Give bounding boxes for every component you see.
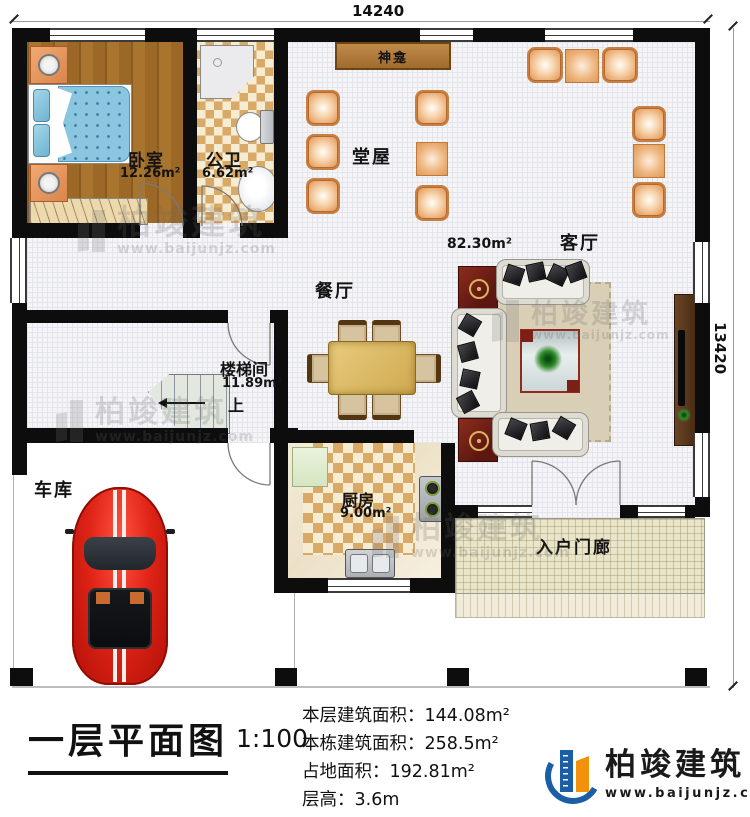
living-area: 82.30m² [447,236,512,252]
hall-chair [306,134,340,170]
nightstand [30,46,68,84]
wall-segment [274,578,328,593]
hall-side-table [416,142,448,176]
right-dimension-line [733,28,734,688]
tv-cabinet-plant [677,408,691,422]
car-windshield [84,537,155,571]
wall-segment [274,443,288,593]
wall-segment [12,42,27,238]
window [693,242,710,303]
hall-chair [527,47,563,83]
window [478,505,532,518]
window [420,28,473,42]
car-stripe [113,490,117,682]
nightstand [30,164,68,202]
toilet-tank [260,110,274,144]
column [685,668,707,686]
width-dimension-label: 14240 [352,2,404,20]
stat-building-area: 本栋建筑面积：258.5m² [302,730,499,755]
stairs-direction-arrow [163,402,205,404]
wall-segment [473,28,545,42]
top-dimension-line [12,21,710,22]
wall-segment [145,28,197,42]
car [72,487,168,685]
wall-segment [12,223,140,238]
wall-segment [410,578,455,593]
driveway-line [12,686,710,688]
dimension-tick [703,14,713,24]
stairs-up-label: 上 [228,392,244,416]
shrine-cabinet: 神龛 [335,42,451,70]
sofa-pillow [530,421,551,442]
hall-chair [306,90,340,126]
tv-screen [678,330,685,406]
end-table [458,266,498,310]
stat-land-area: 占地面积：192.81m² [302,758,475,783]
wall-segment [183,42,197,223]
wall-segment [695,42,710,242]
dining-chair [338,391,367,420]
kitchen-cutting-board [292,447,328,487]
car-engine-cover [88,588,151,649]
wall-segment [441,443,455,593]
wall-segment [12,428,228,443]
wall-segment [274,42,288,223]
wall-segment [12,28,50,42]
wall-segment [695,303,710,433]
bed-pillow [33,89,50,122]
drawing-title: 一层平面图 [28,712,228,775]
window [50,28,145,42]
living-label: 客厅 [560,229,600,255]
kitchen-area: 9.00m² [340,506,391,521]
column [275,668,297,686]
column [10,668,33,686]
brand-url: www.baijunjz.com [605,787,750,800]
dining-chair [372,391,401,420]
wall-segment [695,497,710,517]
sofa-pillow [525,261,546,282]
window [328,578,410,593]
car-mirror [166,529,175,534]
car-mirror [65,529,74,534]
hall-side-table [633,144,665,178]
stat-floor-height: 层高：3.6m [302,786,399,811]
hall-chair [415,90,449,126]
window [638,505,685,518]
wall-segment [441,505,478,518]
wall-segment [633,28,710,42]
window [693,433,710,497]
kitchen-sink [345,549,395,578]
bed-pillow [33,124,50,157]
dimension-tick [9,14,19,24]
dining-chair [413,354,441,383]
window [545,28,633,42]
wall-segment [270,310,288,323]
hall-side-table [565,49,599,83]
hall-chair [306,178,340,214]
hall-label: 堂屋 [352,143,392,169]
hall-chair [602,47,638,83]
wall-segment [274,430,414,443]
garage-label: 车库 [34,476,74,502]
brand-name: 柏竣建筑 [605,750,750,781]
height-dimension-label: 13420 [711,322,729,374]
column [447,668,469,686]
wall-segment [12,303,27,475]
dining-table [328,341,416,395]
car-stripe [122,490,126,682]
wardrobe [30,198,148,225]
porch-label: 入户门廊 [536,533,612,558]
hall-chair [415,185,449,221]
wall-segment [240,223,288,238]
coffee-table-plant [534,345,562,373]
wall-segment [620,505,638,518]
stat-floor-area: 本层建筑面积：144.08m² [302,702,510,727]
window [10,238,27,303]
hall-chair [632,182,666,218]
wall-segment [27,310,228,323]
brand-logo-icon [545,746,597,804]
shrine-label: 神龛 [378,47,408,66]
stairwell-area: 11.89m² [222,376,282,391]
brand-logo: 柏竣建筑 www.baijunjz.com [545,746,750,804]
sofa-pillow [459,368,480,389]
hall-chair [632,106,666,142]
wall-segment [183,223,200,238]
dining-label: 餐厅 [315,277,355,303]
drawing-scale: 1:100 [236,724,308,753]
floor-plan-page: 14240 13420 [0,0,750,817]
window [197,28,274,42]
bedroom-area: 12.26m² [120,166,180,181]
bathroom-area: 6.62m² [202,166,253,181]
wall-segment [274,28,420,42]
porch-steps [455,594,705,618]
wall-segment [685,505,695,518]
